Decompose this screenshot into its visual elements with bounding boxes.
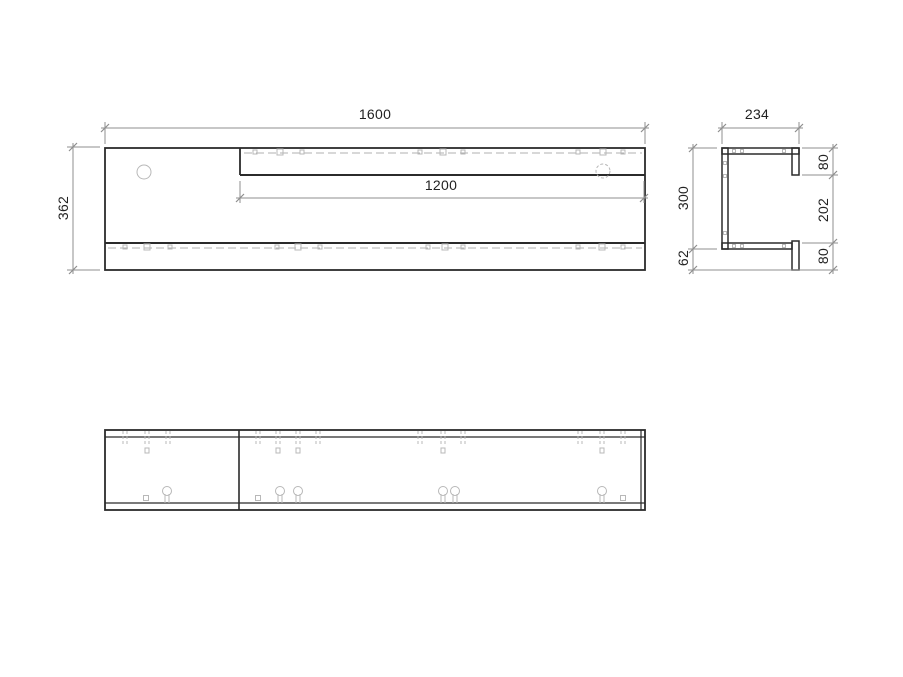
cam-mark <box>451 487 460 496</box>
cam-mark <box>294 487 303 496</box>
fastener-mark <box>733 245 736 248</box>
cam-mark <box>439 487 448 496</box>
fastener-mark <box>733 150 736 153</box>
dim-label-side-bottom-lip: 80 <box>815 248 831 264</box>
technical-drawing-page: 1600 1200 362 234 300 62 80 202 80 <box>0 0 903 677</box>
fastener-mark <box>144 496 149 501</box>
side-top-panel <box>722 148 799 154</box>
dim-label-side-opening: 202 <box>815 198 831 222</box>
fastener-mark <box>724 232 727 235</box>
cam-mark <box>163 487 172 496</box>
side-bottom-lip <box>792 241 799 270</box>
fastener-mark <box>741 150 744 153</box>
fastener-mark <box>724 175 727 178</box>
cam-mark <box>276 487 285 496</box>
fastener-mark <box>295 244 301 250</box>
fastener-mark <box>724 162 727 165</box>
dim-label-side-back-height: 300 <box>675 186 691 210</box>
cam-mark <box>598 487 607 496</box>
fastener-mark <box>440 149 446 155</box>
top-view-outline <box>105 430 645 510</box>
fastener-mark <box>256 496 261 501</box>
fastener-mark <box>599 244 605 250</box>
fastener-mark <box>576 150 580 154</box>
dowel-mark-deep <box>276 448 280 453</box>
fastener-mark <box>144 244 150 250</box>
fastener-mark <box>621 496 626 501</box>
side-back-panel <box>722 148 728 249</box>
dowel-mark-deep <box>296 448 300 453</box>
fastener-mark <box>600 149 606 155</box>
fastener-mark <box>741 245 744 248</box>
dim-label-side-bottom-drop: 62 <box>675 250 691 266</box>
dowel-mark-deep <box>441 448 445 453</box>
dim-label-front-height: 362 <box>55 196 71 220</box>
front-hole <box>137 165 151 179</box>
dim-label-front-width: 1600 <box>359 106 391 122</box>
fastener-mark <box>783 150 786 153</box>
fastener-mark <box>300 150 304 154</box>
fastener-mark <box>442 244 448 250</box>
dim-label-side-depth: 234 <box>745 106 769 122</box>
fastener-mark <box>783 245 786 248</box>
dowel-mark-deep <box>145 448 149 453</box>
fastener-mark <box>277 149 283 155</box>
side-top-lip <box>792 148 799 175</box>
front-view-outline <box>105 148 645 270</box>
dim-label-shelf-length: 1200 <box>425 177 457 193</box>
dowel-mark-deep <box>600 448 604 453</box>
dim-label-side-top-lip: 80 <box>815 154 831 170</box>
drawing-canvas <box>0 0 903 677</box>
